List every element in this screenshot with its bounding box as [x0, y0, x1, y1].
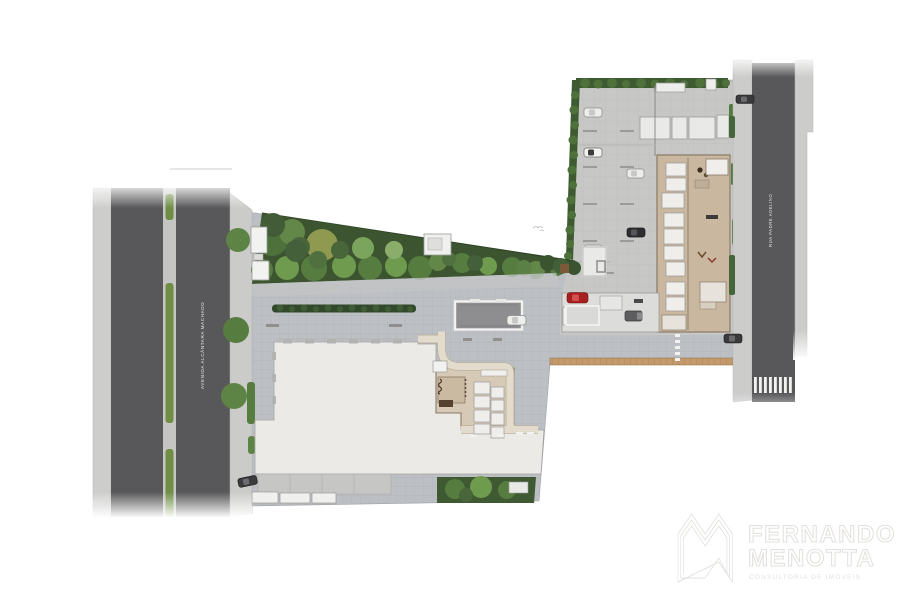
svg-text:FERNANDO: FERNANDO — [748, 521, 896, 548]
svg-text:MENOTTA: MENOTTA — [748, 545, 875, 572]
svg-text:CONSULTORIA DE IMÓVEIS: CONSULTORIA DE IMÓVEIS — [749, 572, 861, 581]
svg-text:AVENIDA ALCÂNTARA MACHADO: AVENIDA ALCÂNTARA MACHADO — [199, 302, 205, 389]
svg-text:RUA PADRE ADELINO: RUA PADRE ADELINO — [768, 193, 773, 247]
